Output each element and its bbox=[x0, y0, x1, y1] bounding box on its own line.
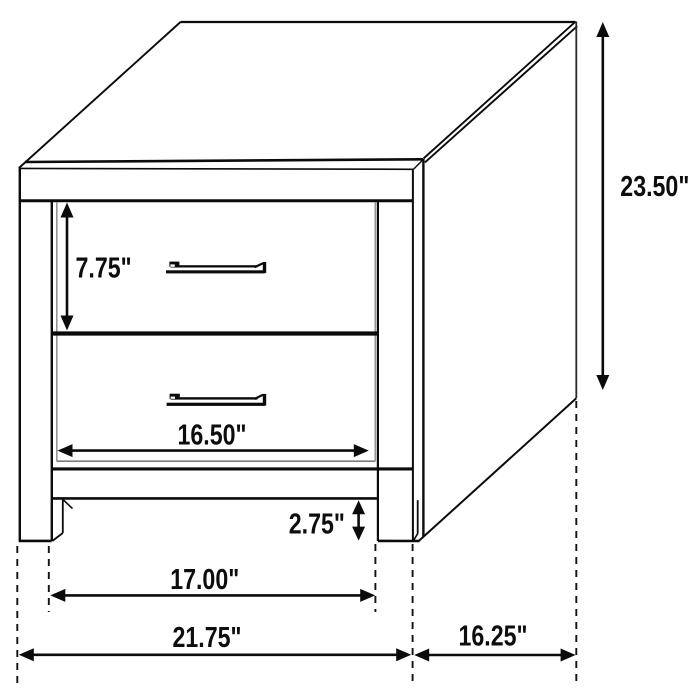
svg-text:21.75": 21.75" bbox=[172, 620, 241, 653]
svg-text:16.50": 16.50" bbox=[177, 418, 246, 451]
svg-text:17.00": 17.00" bbox=[170, 562, 239, 595]
svg-text:7.75": 7.75" bbox=[76, 251, 132, 284]
svg-text:16.25": 16.25" bbox=[458, 619, 527, 652]
svg-text:2.75": 2.75" bbox=[289, 507, 345, 540]
svg-text:23.50": 23.50" bbox=[620, 169, 689, 202]
